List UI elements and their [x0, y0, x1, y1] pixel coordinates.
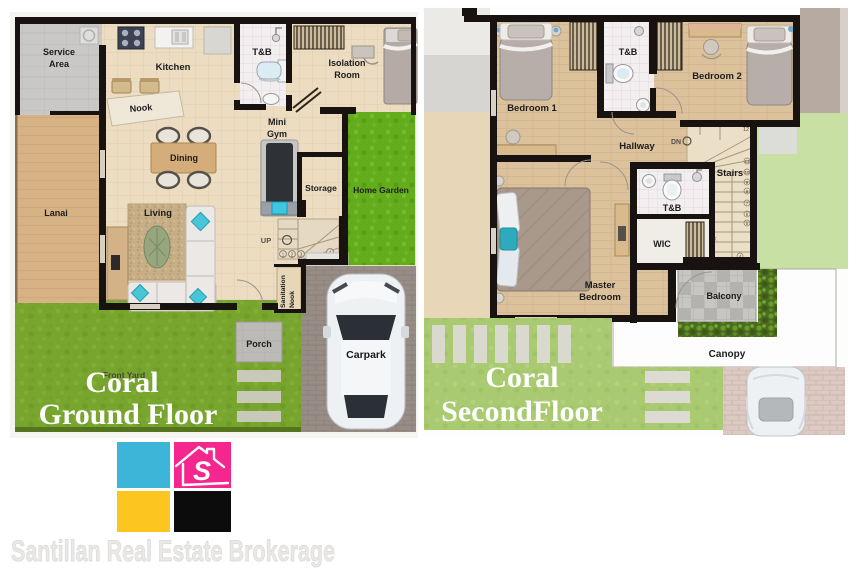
svg-text:Stairs: Stairs [717, 168, 743, 179]
svg-text:Bedroom: Bedroom [579, 292, 621, 303]
svg-text:Room: Room [334, 70, 360, 80]
svg-text:Living: Living [144, 208, 172, 219]
svg-text:Porch: Porch [246, 339, 272, 349]
svg-text:Mini: Mini [268, 117, 286, 127]
svg-text:T&B: T&B [252, 47, 272, 58]
svg-text:Dining: Dining [170, 153, 198, 163]
svg-text:Nook: Nook [289, 291, 296, 308]
svg-text:DN: DN [671, 139, 681, 146]
svg-text:Hallway: Hallway [619, 141, 655, 152]
svg-text:Bedroom 1: Bedroom 1 [507, 103, 557, 114]
svg-text:Coral: Coral [85, 366, 158, 399]
svg-text:WIC: WIC [653, 239, 671, 249]
svg-text:Nook: Nook [129, 102, 153, 114]
svg-text:Kitchen: Kitchen [156, 62, 191, 73]
svg-text:Gym: Gym [267, 129, 287, 139]
svg-text:Area: Area [49, 59, 70, 69]
svg-text:Storage: Storage [305, 183, 337, 193]
svg-text:Canopy: Canopy [709, 349, 746, 360]
svg-text:S: S [193, 456, 211, 486]
svg-text:SecondFloor: SecondFloor [441, 395, 603, 428]
svg-text:UP: UP [261, 236, 271, 245]
svg-text:Coral: Coral [485, 361, 558, 394]
svg-text:T&B: T&B [663, 203, 682, 213]
svg-text:Carpark: Carpark [346, 349, 386, 361]
svg-text:Isolation: Isolation [328, 58, 365, 68]
svg-text:Home Garden: Home Garden [353, 185, 409, 195]
svg-text:Balcony: Balcony [706, 291, 741, 301]
svg-text:Bedroom 2: Bedroom 2 [692, 71, 742, 82]
svg-text:3: 3 [300, 253, 303, 259]
svg-text:11: 11 [745, 159, 750, 164]
svg-text:Santillan Real Estate Brokerag: Santillan Real Estate Brokerage [11, 535, 335, 568]
svg-text:Ground Floor: Ground Floor [39, 398, 218, 431]
svg-text:2: 2 [291, 253, 294, 259]
svg-text:10: 10 [744, 170, 750, 175]
svg-text:12: 12 [743, 127, 749, 133]
svg-text:1: 1 [282, 253, 285, 259]
svg-text:Lanai: Lanai [44, 208, 68, 218]
svg-text:Master: Master [585, 280, 616, 291]
svg-text:Service: Service [43, 47, 75, 57]
svg-text:Sanitation: Sanitation [280, 275, 287, 308]
svg-text:T&B: T&B [619, 47, 638, 57]
